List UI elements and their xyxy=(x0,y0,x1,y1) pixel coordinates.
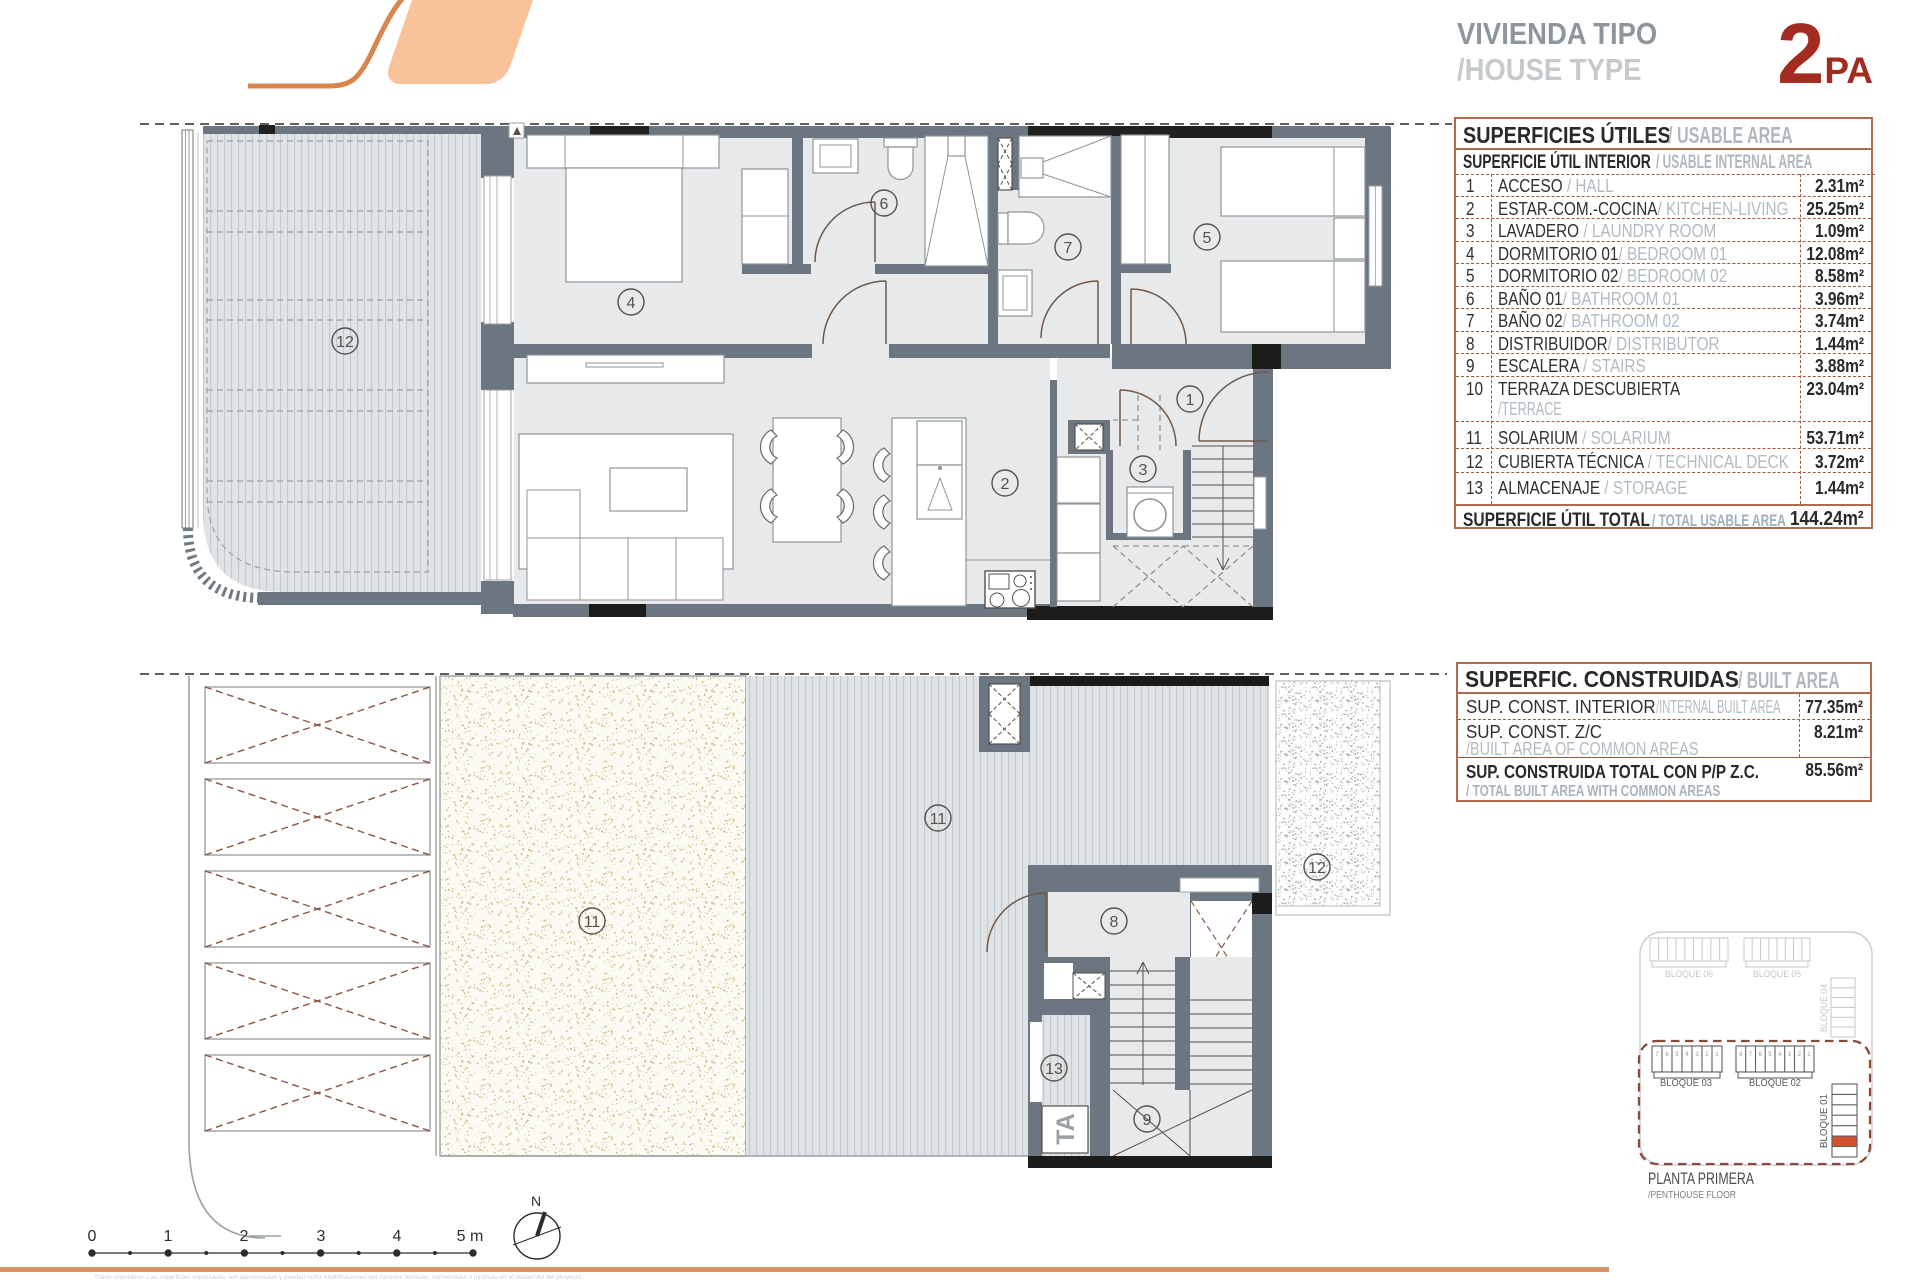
svg-text:BLOQUE 01: BLOQUE 01 xyxy=(1819,1094,1830,1148)
svg-text:3: 3 xyxy=(317,1228,326,1245)
svg-text:12: 12 xyxy=(336,334,354,351)
svg-text:3: 3 xyxy=(1139,462,1148,479)
svg-text:12: 12 xyxy=(1308,860,1326,877)
svg-text:BLOQUE 05: BLOQUE 05 xyxy=(1753,969,1801,979)
svg-text:1: 1 xyxy=(164,1228,173,1245)
svg-text:8: 8 xyxy=(1110,914,1119,931)
svg-text:BLOQUE 06: BLOQUE 06 xyxy=(1665,969,1713,979)
svg-text:4: 4 xyxy=(627,295,636,312)
svg-text:9: 9 xyxy=(1143,1112,1152,1129)
svg-text:BLOQUE 02: BLOQUE 02 xyxy=(1749,1078,1801,1089)
svg-text:11: 11 xyxy=(584,914,601,931)
svg-text:11: 11 xyxy=(930,811,947,828)
svg-text:2: 2 xyxy=(240,1228,249,1245)
svg-text:4: 4 xyxy=(393,1228,402,1245)
svg-text:2: 2 xyxy=(1001,476,1010,493)
svg-text:5: 5 xyxy=(1203,230,1212,247)
svg-text:N: N xyxy=(531,1193,541,1209)
svg-text:/PENTHOUSE FLOOR: /PENTHOUSE FLOOR xyxy=(1648,1189,1736,1201)
svg-text:13: 13 xyxy=(1045,1061,1063,1078)
svg-text:0: 0 xyxy=(88,1228,97,1245)
svg-text:7: 7 xyxy=(1064,240,1073,257)
svg-text:PLANTA PRIMERA: PLANTA PRIMERA xyxy=(1648,1170,1754,1188)
svg-text:5 m: 5 m xyxy=(457,1228,484,1245)
svg-text:BLOQUE 03: BLOQUE 03 xyxy=(1660,1078,1712,1089)
svg-text:1: 1 xyxy=(1186,392,1195,409)
svg-text:BLOQUE 04: BLOQUE 04 xyxy=(1819,984,1829,1032)
svg-text:6: 6 xyxy=(880,196,889,213)
svg-text:Plano orientativo. Las superfi: Plano orientativo. Las superficies expre… xyxy=(95,1274,583,1280)
svg-text:TA: TA xyxy=(1052,1113,1080,1144)
